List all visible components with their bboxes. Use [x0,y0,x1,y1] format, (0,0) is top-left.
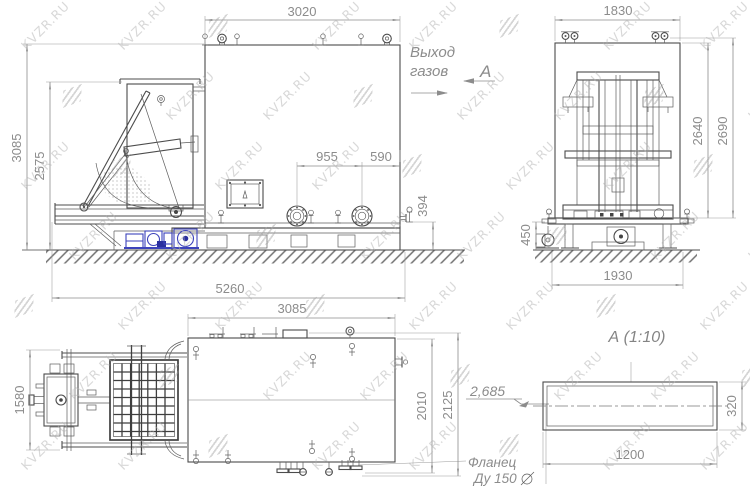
right-stub-icon [395,357,408,368]
gas-outlet-line2: газов [410,63,448,80]
cad-drawing: Выход газов А 3020 3085 2575 955 [0,0,750,500]
flange-port [352,206,372,226]
ground-hatch [22,250,465,264]
drain-valve-icon [218,210,341,223]
dim-side-base-width: 1930 [604,268,633,283]
side-view: 1830 2640 2690 450 1930 [518,3,736,289]
dim-plan-body-width: 2010 [414,392,429,421]
dim-track-width: 1580 [12,386,27,415]
dim-flange-spacing: 955 [316,149,338,164]
base-frame [172,228,400,250]
dim-side-overall-height: 2690 [715,117,730,146]
dim-side-width: 1830 [604,3,633,18]
side-pump [536,226,559,248]
gas-flow-arrow [437,90,448,95]
dim-flange-edge: 590 [370,149,392,164]
boiler-body [205,45,400,228]
ground-hatch [533,250,700,263]
drawing-sheet: Выход газов А 3020 3085 2575 955 [0,0,750,500]
section-letter: А [479,62,491,81]
dim-front-width: 3020 [288,4,317,19]
dim-foundation-height: 450 [518,224,533,246]
dim-plan-overall-width: 2125 [440,391,455,420]
skip-rails [55,203,205,250]
side-stub-valve-icon [400,207,413,222]
level-value: 2,685 [469,383,505,399]
gas-outlet-label: Выход газов [410,44,455,96]
gas-outlet-line1: Выход [410,44,455,61]
rope-pulley-icon [651,32,669,43]
dim-side-frame-height: 2640 [690,117,705,146]
plan-view: 2,685 Фланец Ду 150 3085 1580 2010 2 [12,301,549,486]
plan-carriage [29,364,110,436]
access-door [227,180,263,208]
front-view: Выход газов А 3020 3085 2575 955 [9,4,495,302]
dim-valve-height: 394 [415,195,430,217]
dim-detail-width: 1200 [616,447,645,462]
flange-label-line2: Ду 150 [472,471,517,486]
detail-title: А (1:10) [608,329,666,346]
section-a-mark: А [463,62,495,84]
detail-dimensions: 1200 320 [543,382,746,468]
plan-dimensions: 3085 1580 2010 2125 [12,301,461,476]
dim-overall-length: 5260 [216,281,245,296]
flange-port [287,206,307,226]
dim-front-overall-height: 3085 [9,134,24,163]
section-view-arrow [463,78,474,83]
dim-detail-height: 320 [724,395,739,417]
plan-rails [62,349,187,451]
rope-pulley-icon [561,32,579,43]
bottom-carriage [563,205,673,250]
dim-plan-length: 3085 [278,301,307,316]
plan-valve-icons [193,343,355,463]
dim-front-hopper-height: 2575 [32,152,47,181]
top-clamp-icon [209,327,278,338]
skip-grate [110,345,178,455]
detail-a-view: А (1:10) 1200 320 [533,329,746,468]
lifting-eye-icon [218,34,392,45]
flange-label: Фланец Ду 150 [358,455,517,486]
flange-label-line1: Фланец [468,455,516,470]
skip-hopper [80,79,205,218]
drive-unit [124,229,199,248]
guide-frame [563,72,673,212]
